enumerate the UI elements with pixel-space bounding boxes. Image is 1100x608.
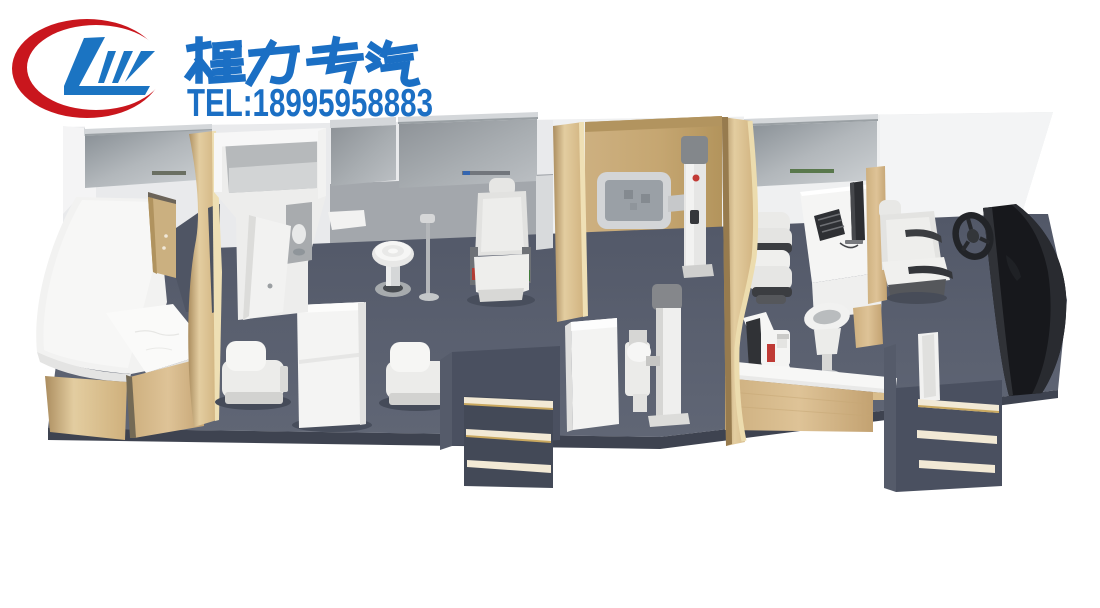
svg-text:TEL:18995958883: TEL:18995958883 — [187, 82, 433, 125]
